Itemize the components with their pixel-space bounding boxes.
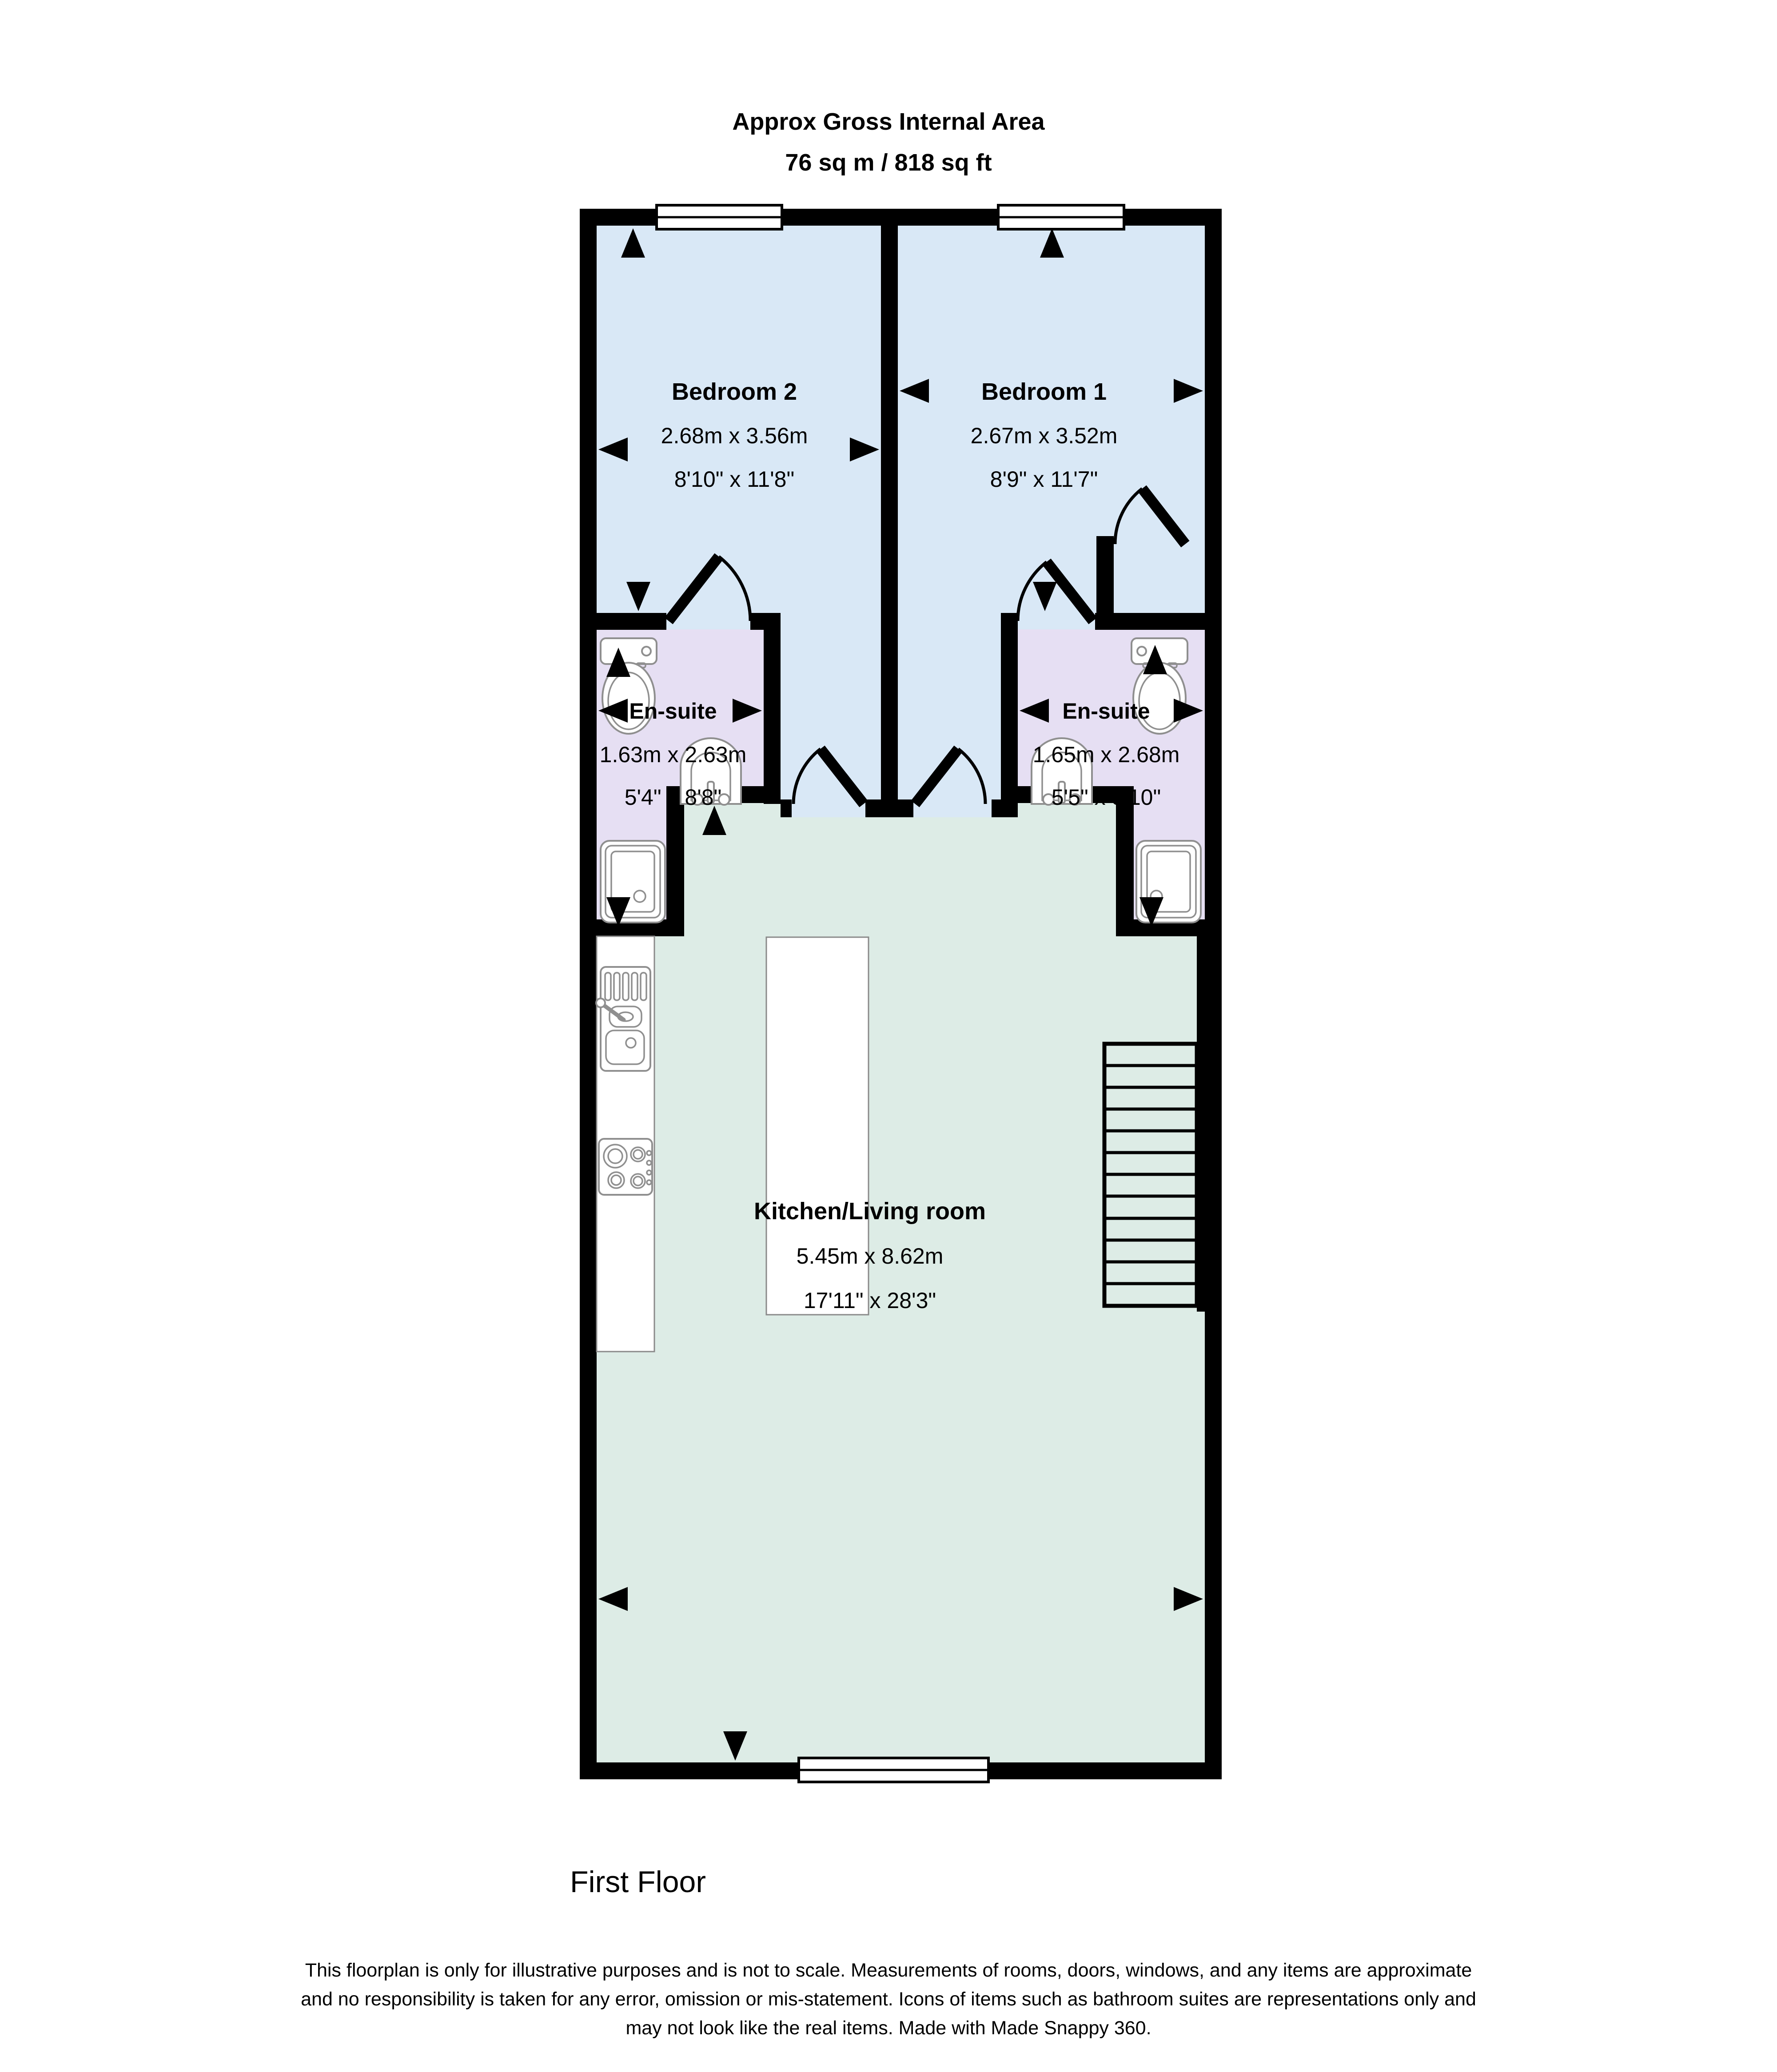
- kitchen-dims-imperial: 17'11" x 28'3": [804, 1288, 936, 1313]
- bedroom2-dims-imperial: 8'10" x 11'8": [674, 467, 795, 492]
- wall-ensuite-left-right: [764, 613, 781, 804]
- kitchen-floor-mid-strip: [781, 817, 1018, 935]
- bedroom1-dims-imperial: 8'9" x 11'7": [990, 467, 1098, 492]
- room-fills: [597, 226, 1205, 1762]
- floor-label: First Floor: [570, 1865, 706, 1899]
- ensuite-right-dims-imperial: 5'5" x 8'10": [1052, 785, 1161, 810]
- wall-ensuite-right-left: [1001, 613, 1018, 804]
- bedroom1-name: Bedroom 1: [981, 378, 1107, 405]
- wall-kitchen-top-c: [992, 799, 1018, 817]
- window-icon-bedroom1: [998, 205, 1124, 229]
- ensuite-left-dims-metric: 1.63m x 2.63m: [600, 742, 747, 767]
- kitchen-floor-right-strip: [1018, 802, 1116, 935]
- hob-icon: [599, 1139, 652, 1195]
- sink-unit-icon: [596, 967, 650, 1071]
- wall-closet-stub: [1096, 536, 1114, 630]
- bedroom1-corridor-floor: [898, 613, 1001, 817]
- kitchen-dims-metric: 5.45m x 8.62m: [797, 1244, 944, 1269]
- ensuite-left-dims-imperial: 5'4" x 8'8": [625, 785, 722, 810]
- ensuite-right-dims-metric: 1.65m x 2.68m: [1033, 742, 1180, 767]
- shower-icon-left: [601, 841, 665, 923]
- wall-bedroom-divider: [881, 226, 898, 817]
- ensuite-left-name: En-suite: [629, 699, 717, 724]
- disclaimer: This floorplan is only for illustrative …: [0, 1956, 1777, 2043]
- floorplan-page: Approx Gross Internal Area 76 sq m / 818…: [0, 0, 1777, 2072]
- bedroom1-dims-metric: 2.67m x 3.52m: [971, 423, 1118, 448]
- disclaimer-line-2: and no responsibility is taken for any e…: [0, 1985, 1777, 2014]
- wall-stairwell: [1197, 933, 1222, 1312]
- kitchen-name: Kitchen/Living room: [754, 1198, 986, 1225]
- wall-kitchen-top-a: [781, 799, 792, 817]
- window-icon-kitchen: [799, 1758, 988, 1782]
- wall-ensuite-left-top-a: [597, 613, 666, 630]
- bedroom2-dims-metric: 2.68m x 3.56m: [661, 423, 808, 448]
- window-icon-bedroom2: [657, 205, 782, 229]
- ensuite-right-name: En-suite: [1062, 699, 1150, 724]
- bedroom2-name: Bedroom 2: [672, 378, 797, 405]
- bedroom1-floor: [898, 226, 1205, 613]
- wall-kitchen-top-b: [865, 799, 913, 817]
- wall-left: [580, 209, 597, 1779]
- stairs-icon: [1104, 1044, 1197, 1306]
- bedroom2-floor: [597, 226, 881, 613]
- kitchen-floor-left-strip: [684, 802, 781, 935]
- disclaimer-line-3: may not look like the real items. Made w…: [0, 2014, 1777, 2043]
- floorplan-drawing: Bedroom 2 2.68m x 3.56m 8'10" x 11'8" Be…: [0, 0, 1777, 2072]
- disclaimer-line-1: This floorplan is only for illustrative …: [0, 1956, 1777, 1985]
